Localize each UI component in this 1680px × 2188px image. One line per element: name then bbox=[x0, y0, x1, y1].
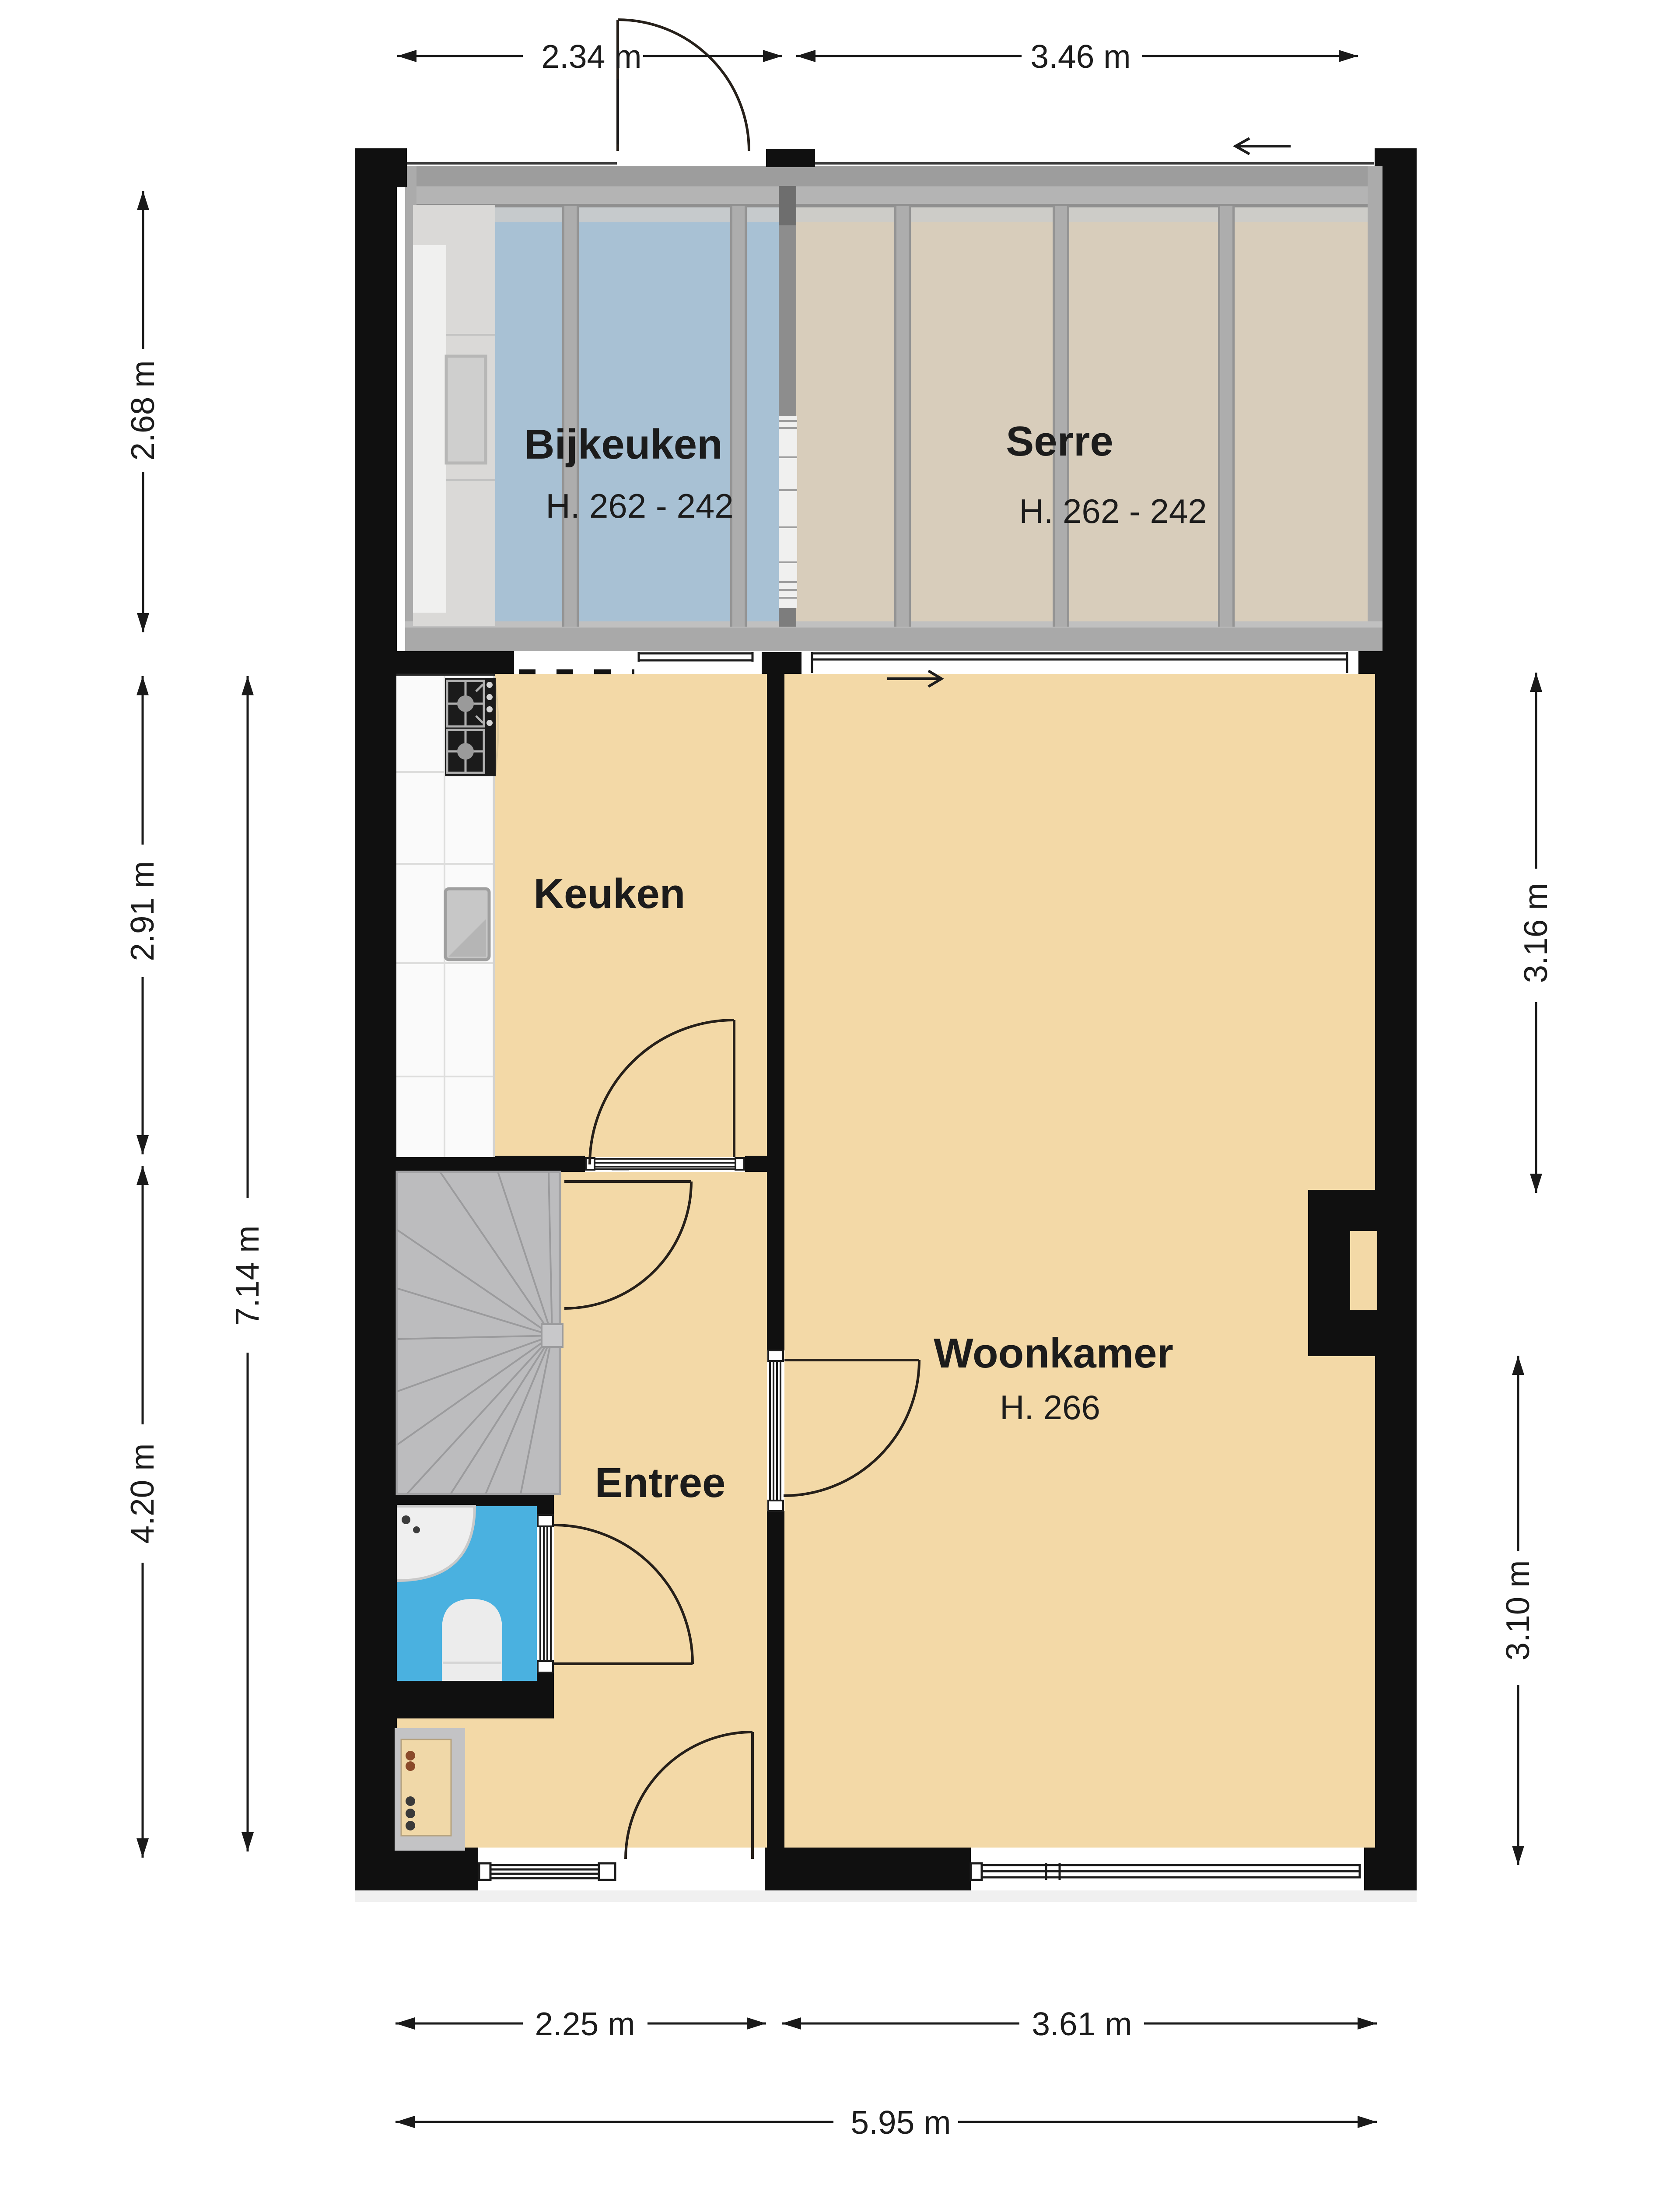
svg-text:7.14 m: 7.14 m bbox=[229, 1225, 266, 1325]
svg-text:2.91 m: 2.91 m bbox=[124, 861, 161, 961]
svg-text:2.34 m: 2.34 m bbox=[541, 38, 641, 75]
svg-text:H. 262 - 242: H. 262 - 242 bbox=[1019, 492, 1207, 530]
svg-text:H. 266: H. 266 bbox=[1000, 1388, 1100, 1427]
svg-text:Bijkeuken: Bijkeuken bbox=[524, 421, 723, 468]
svg-text:Entree: Entree bbox=[595, 1459, 726, 1506]
svg-text:Woonkamer: Woonkamer bbox=[934, 1330, 1173, 1377]
svg-text:3.16 m: 3.16 m bbox=[1517, 883, 1554, 983]
svg-text:3.46 m: 3.46 m bbox=[1030, 38, 1130, 75]
svg-text:5.95 m: 5.95 m bbox=[850, 2104, 951, 2141]
svg-text:H. 262 - 242: H. 262 - 242 bbox=[546, 487, 733, 525]
svg-text:2.25 m: 2.25 m bbox=[535, 2006, 635, 2042]
svg-text:Keuken: Keuken bbox=[534, 870, 686, 917]
svg-text:3.61 m: 3.61 m bbox=[1032, 2006, 1132, 2042]
svg-text:Serre: Serre bbox=[1006, 418, 1113, 465]
svg-text:2.68 m: 2.68 m bbox=[124, 360, 161, 460]
svg-text:4.20 m: 4.20 m bbox=[124, 1443, 161, 1543]
svg-text:3.10 m: 3.10 m bbox=[1499, 1560, 1536, 1660]
